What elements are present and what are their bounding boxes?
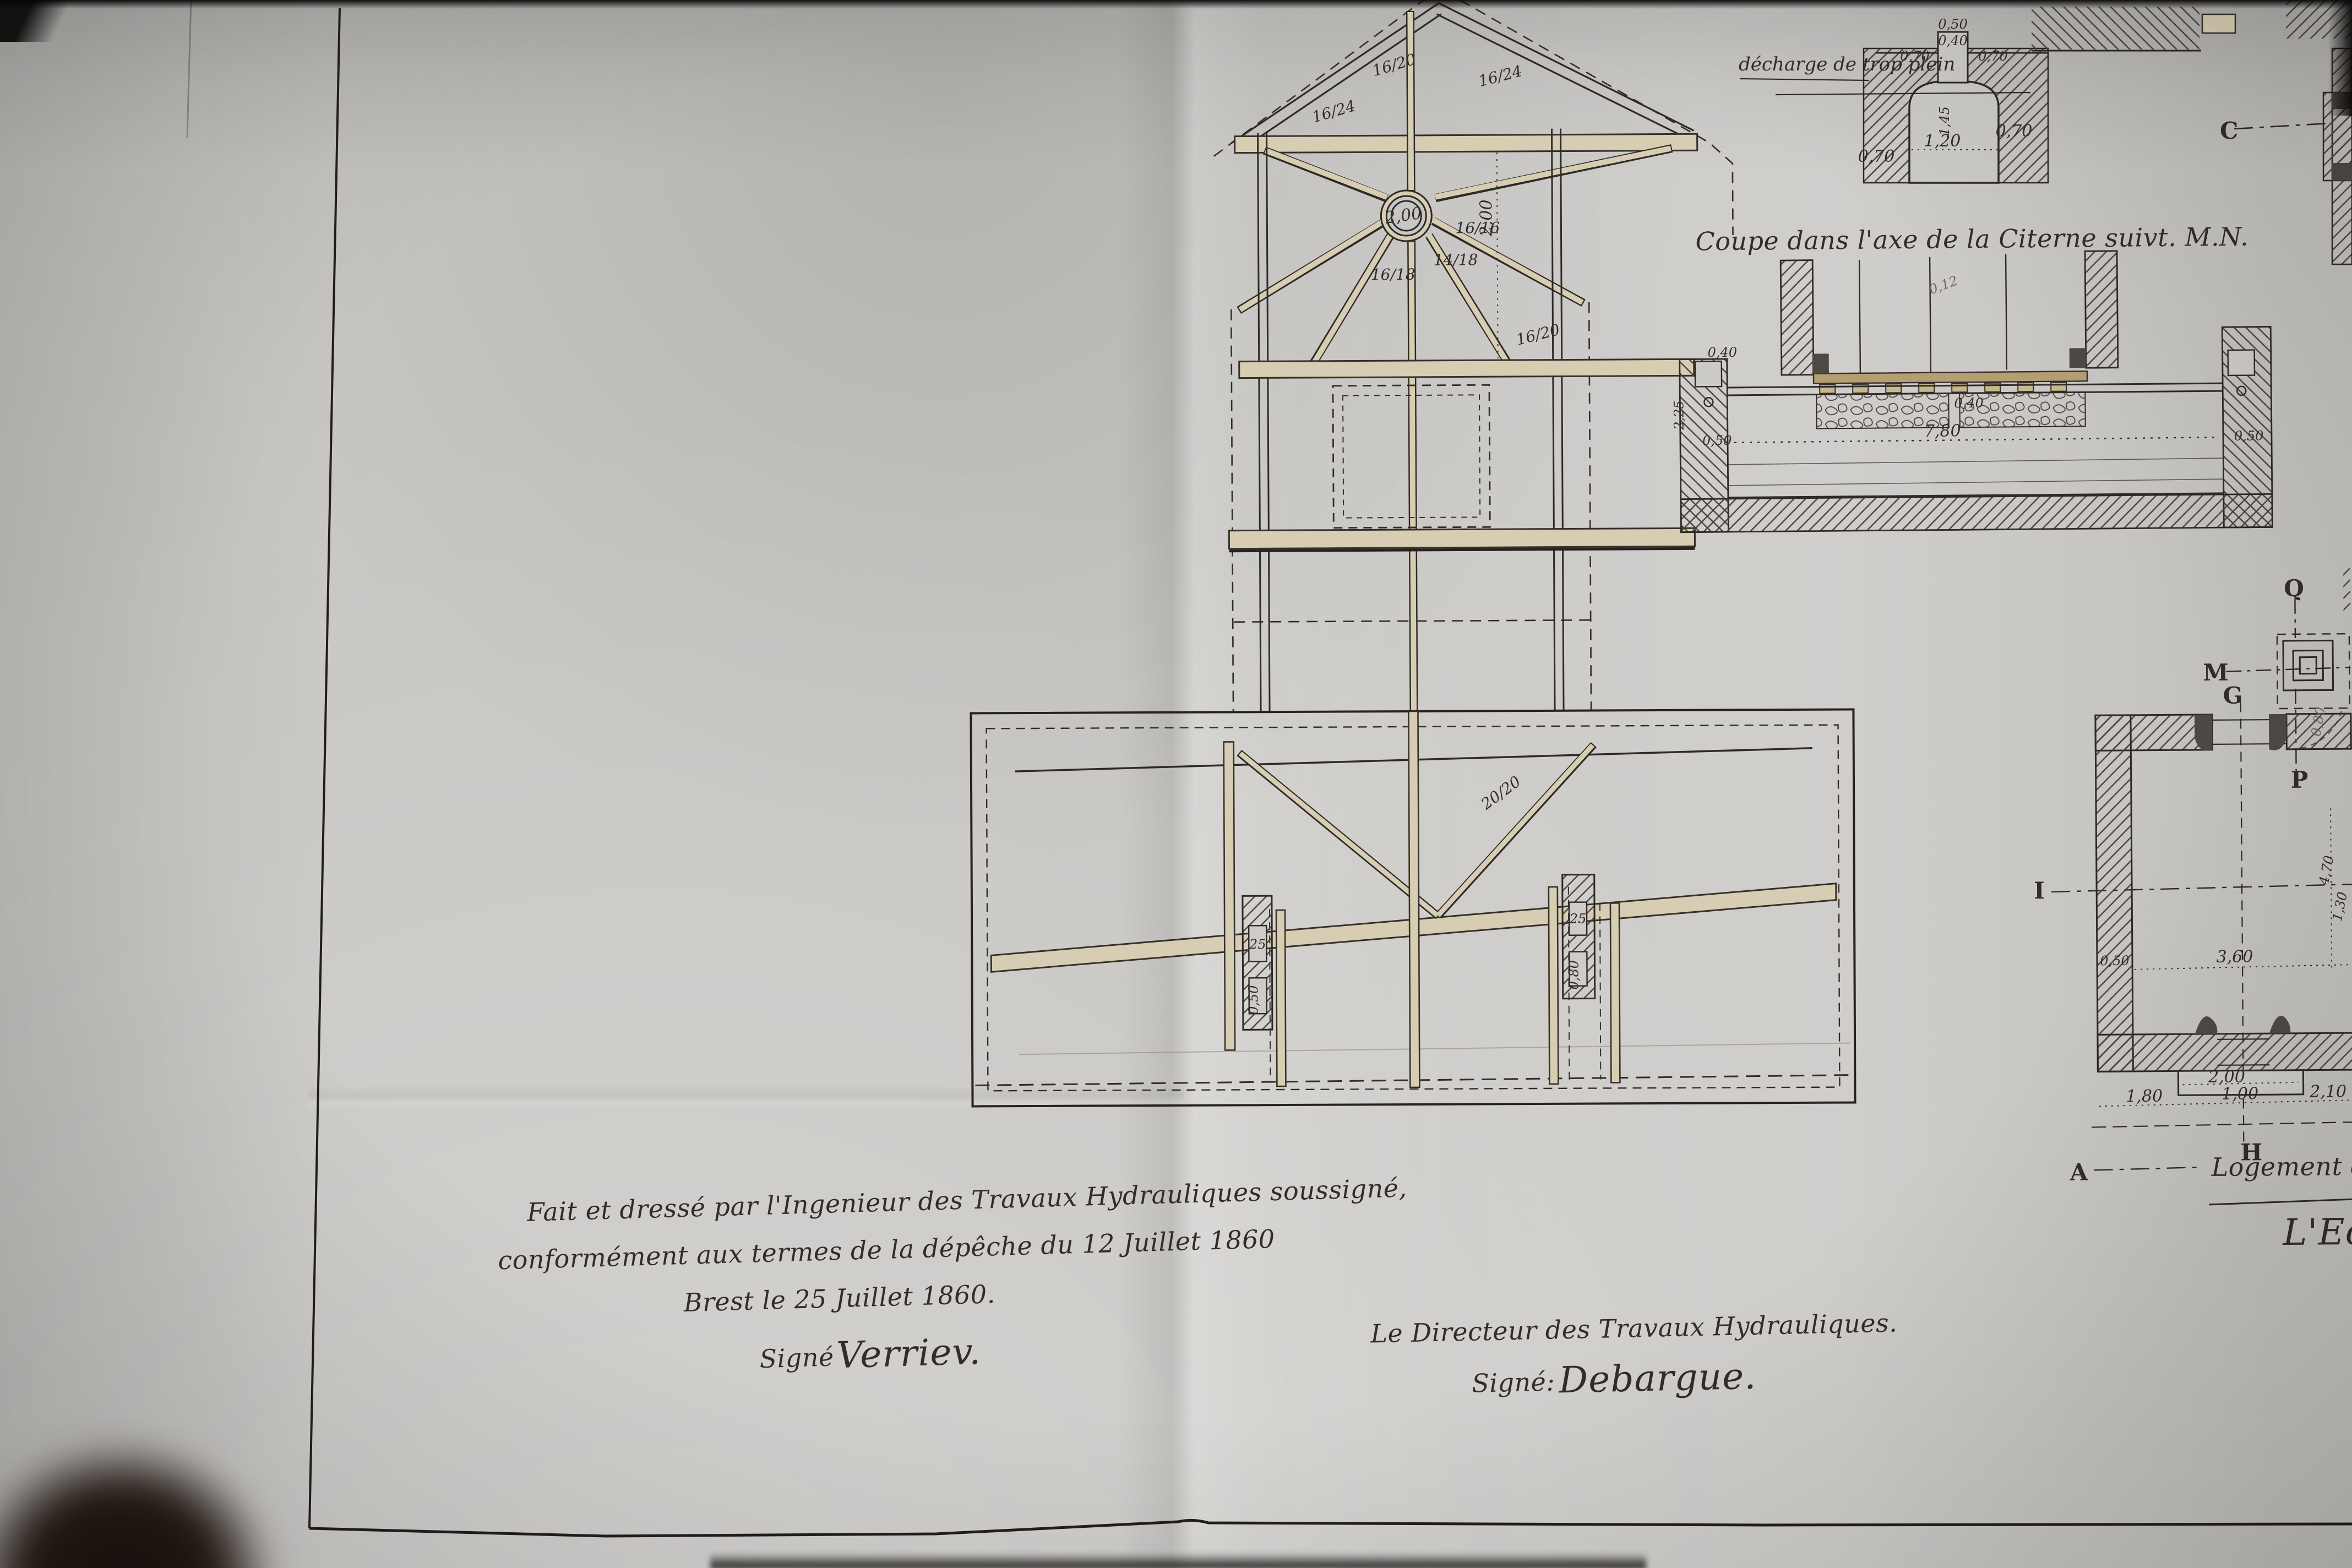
dim-plan-050: 0,50 (2100, 953, 2130, 968)
signature-block-engineer: Fait et dressé par l'Ingenieur des Trava… (496, 1173, 1412, 1386)
photo-of-engineering-drawing: 2,00 2,00 16/20 16/24 16/24 16/16 16/18 … (0, 0, 2352, 1568)
overflow-detail: décharge de trop plein 0,50 0,40 0,70 0,… (1739, 0, 2352, 183)
dim-block-25-left: 25 (1249, 937, 1266, 952)
letter-a: A (2070, 1158, 2089, 1185)
dim-arch-120: 1,20 (1924, 132, 1961, 151)
signature-block-director: Le Directeur des Travaux Hydrauliques. S… (1370, 1308, 1899, 1405)
lodging-plan: Q M G P I H A 3,60 0,50 2,00 1,80 1,00 2… (2032, 567, 2352, 1255)
title-coupe-citerne: Coupe dans l'axe de la Citerne suivt. M.… (1695, 222, 2248, 257)
sig-signe-name: Verriev. (836, 1330, 981, 1376)
dir-signe-label: Signé: (1472, 1367, 1555, 1398)
dim-tank-012: 0,12 (1927, 273, 1960, 297)
frac-label-5: 16/18 (1371, 265, 1415, 284)
photo-top-shadow (0, 0, 2352, 9)
photo-topleft-shadow (0, 0, 99, 42)
dim-plan-180: 1,80 (2126, 1087, 2163, 1106)
dim-block-25-right: 25 (1569, 911, 1587, 927)
cistern-section: Coupe dans l'axe de la Citerne suivt. M.… (1670, 221, 2273, 532)
sig-line1: Fait et dressé par l'Ingenieur des Trava… (526, 1173, 1407, 1227)
dim-arch-070a: 0,70 (1900, 48, 1929, 64)
dim-tank-040b: 0,40 (1954, 395, 1984, 411)
tower-elevation: 2,00 2,00 16/20 16/24 16/24 16/16 16/18 … (1213, 0, 1735, 712)
letter-p: P (2291, 766, 2309, 793)
sig-line3: Brest le 25 Juillet 1860. (683, 1279, 995, 1317)
sig-signe-label: Signé (759, 1342, 834, 1374)
dim-arch-070d: 0,70 (1996, 122, 2033, 141)
dim-plan-360: 3,60 (2216, 947, 2253, 966)
dim-arch-050: 0,50 (1938, 17, 1967, 32)
dim-plan-210: 2,10 (2309, 1082, 2346, 1101)
letter-c: C (2220, 117, 2238, 144)
dim-plan-130: 1,30 (2329, 890, 2350, 922)
dir-line1: Le Directeur des Travaux Hydrauliques. (1370, 1308, 1898, 1348)
dir-signe-name: Debargue. (1558, 1355, 1756, 1402)
foreground-finger-shadow (0, 1376, 347, 1568)
dim-tank-780: 7,80 (1924, 421, 1961, 441)
dim-block-050-right: 0,80 (1566, 960, 1581, 990)
frac-label-6: 14/18 (1434, 251, 1478, 269)
dim-arch-040: 0,40 (1938, 33, 1967, 48)
letter-i: I (2034, 877, 2045, 904)
photo-topright-shadow (2319, 0, 2352, 116)
dim-tank-050L: 0,50 (1702, 433, 1732, 448)
photo-bottom-shadow (710, 1553, 1646, 1568)
platform-structure: 25 0,50 25 0,80 20/20 (971, 709, 1855, 1106)
drawing-linework: 2,00 2,00 16/20 16/24 16/24 16/16 16/18 … (0, 0, 2352, 1568)
dim-arch-070b: 0,70 (1978, 48, 2007, 64)
frac-label-7: 16/20 (1514, 320, 1561, 349)
frac-label-8: 20/20 (1477, 772, 1524, 814)
sig-line2: conformément aux termes de la dépêche du… (498, 1224, 1276, 1275)
dim-block-050-left: 0,50 (1246, 985, 1261, 1015)
dim-arch-070c: 0,70 (1858, 147, 1895, 166)
dim-tank-040a: 0,40 (1707, 345, 1737, 360)
frac-label-3: 16/24 (1310, 96, 1358, 126)
dim-plan-100: 1,00 (2222, 1084, 2258, 1103)
frac-label-4: 16/16 (1455, 219, 1500, 237)
dim-plan-470: 4,70 (2316, 854, 2337, 887)
caption-logement: Logement du 1er G (2211, 1151, 2352, 1182)
letter-q: Q (2284, 575, 2304, 602)
frac-label-2: 16/24 (1477, 62, 1524, 90)
dim-tank-225: 2,25 (1671, 400, 1686, 431)
letter-g: G (2223, 682, 2242, 709)
caption-echelle: L'Ech (2282, 1211, 2352, 1254)
dim-tank-050R: 0,50 (2234, 428, 2264, 443)
